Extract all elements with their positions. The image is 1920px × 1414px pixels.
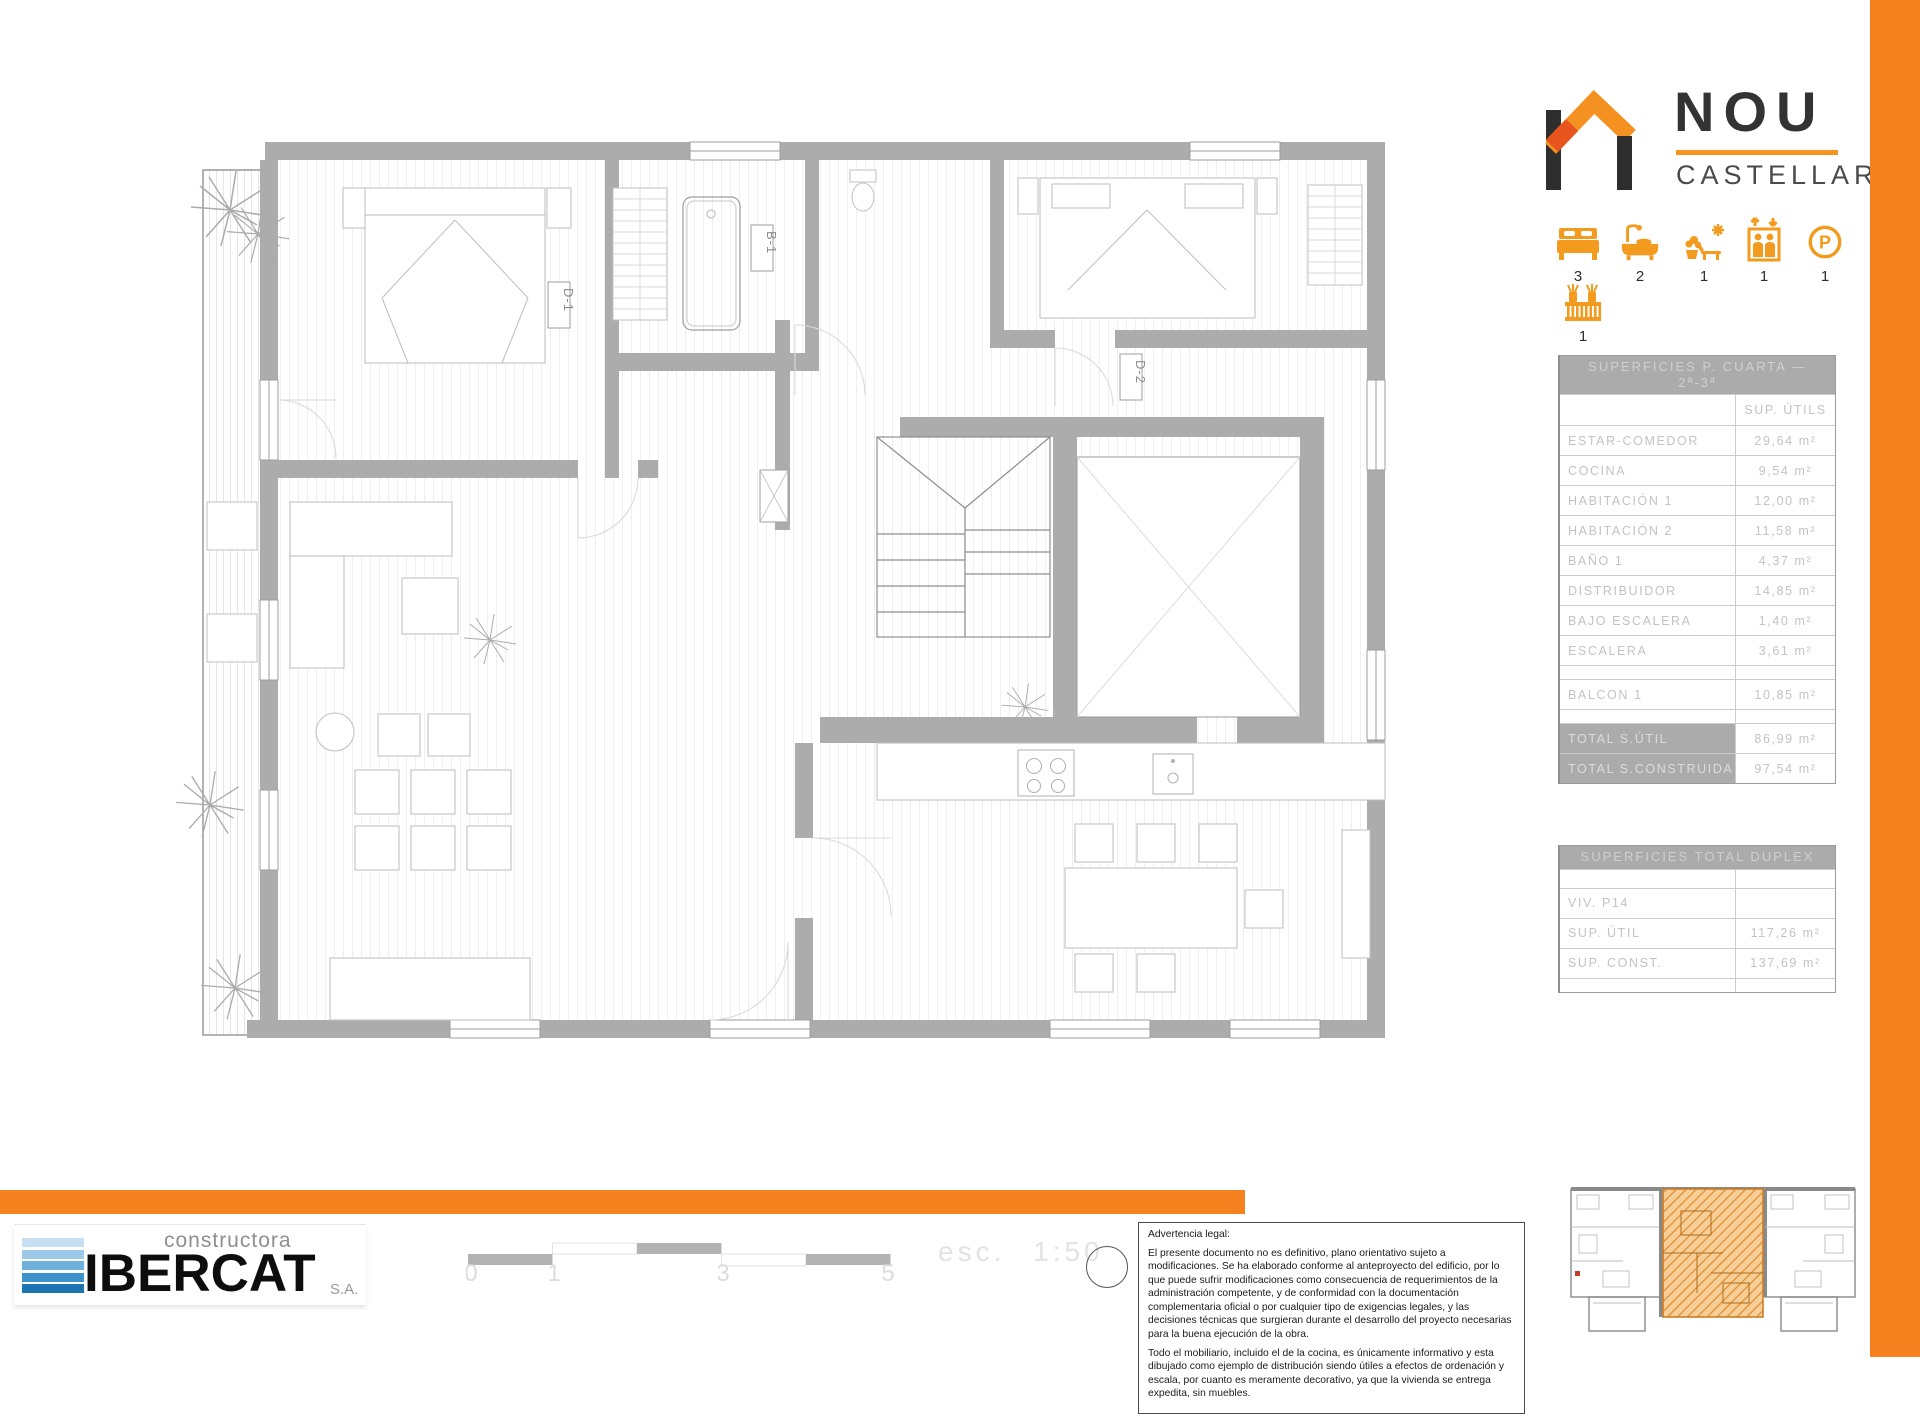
kitchen [877,743,1385,800]
table-row: BALCON 110,85 m² [1560,679,1835,709]
ibercat-bars-icon [22,1238,84,1296]
svg-text:1: 1 [547,1260,560,1284]
bottom-orange-bar [0,1190,1245,1214]
surfaces-table-title: SUPERFICIES P. CUARTA — 2ª-3ª [1560,356,1835,394]
brand-title: NOU [1674,84,1825,140]
table-row: COCINA9,54 m² [1560,455,1835,485]
closet-d1 [613,188,667,320]
table-total-row: TOTAL S.CONSTRUIDA97,54 m² [1560,753,1835,783]
amenity-bathrooms: 2 [1618,222,1662,285]
scale-text: esc. 1:50 [938,1236,1104,1268]
ibercat-suffix: S.A. [330,1281,358,1298]
table-row: HABITACIÓN 211,58 m² [1560,515,1835,545]
svg-text:D-2: D-2 [1133,360,1148,384]
table-row: BAJO ESCALERA1,40 m² [1560,605,1835,635]
table-spacer-row [1560,709,1835,723]
svg-text:0: 0 [466,1260,478,1284]
surfaces-table: SUPERFICIES P. CUARTA — 2ª-3ª SUP. ÚTILS… [1558,355,1836,784]
table-spacer-row [1560,978,1835,992]
bed-d1 [343,188,571,363]
amenity-balcony: 1 [1560,280,1606,345]
table-row: HABITACIÓN 112,00 m² [1560,485,1835,515]
table-row: SUP. CONST.137,69 m² [1560,948,1835,978]
table-total-row: TOTAL S.ÚTIL86,99 m² [1560,723,1835,753]
balcony-terrace [203,170,261,1035]
bathtub-icon [1619,222,1661,262]
patio-void [1077,457,1300,717]
parking-icon: P [1806,222,1844,262]
table-row: ESCALERA3,61 m² [1560,635,1835,665]
right-orange-bar [1870,0,1920,1357]
duplex-table-title: SUPERFICIES TOTAL DUPLEX [1560,846,1835,869]
floor-plan: D-1 B-1 D-2 [150,130,1420,1060]
amenity-parking: P 1 [1805,222,1845,285]
table-spacer-row [1560,665,1835,679]
legal-notice: Advertencia legal: El presente documento… [1138,1222,1525,1414]
surfaces-table-colheader: SUP. ÚTILS [1560,394,1835,425]
key-plan-marker [1575,1271,1580,1276]
toilet [850,170,876,211]
table-row: ESTAR-COMEDOR29,64 m² [1560,425,1835,455]
elevator-count: 1 [1744,268,1784,285]
terrace-icon [1680,222,1728,262]
bed-icon [1555,222,1601,262]
constructor-logo: constructora IBERCAT S.A. [14,1224,366,1305]
bathrooms-count: 2 [1618,268,1662,285]
key-plan-highlighted-unit [1663,1189,1763,1317]
house-logo-icon [1546,90,1636,190]
terrace-count: 1 [1678,268,1730,285]
north-circle [1086,1246,1128,1288]
table-row: VIV. P14 [1560,888,1835,918]
parking-count: 1 [1805,268,1845,285]
amenity-terrace: 1 [1678,222,1730,285]
table-row: SUP. ÚTIL117,26 m² [1560,918,1835,948]
balcony-count: 1 [1560,328,1606,345]
duplex-table: SUPERFICIES TOTAL DUPLEX VIV. P14 SUP. Ú… [1558,845,1836,993]
legal-paragraph: Todo el mobiliario, incluido el de la co… [1148,1347,1515,1401]
amenity-bedrooms: 3 [1552,222,1604,285]
svg-text:D-1: D-1 [561,288,576,312]
table-row: DISTRIBUIDOR14,85 m² [1560,575,1835,605]
legal-title: Advertencia legal: [1148,1228,1515,1242]
svg-text:P: P [1819,233,1831,253]
brand-underline [1676,150,1838,155]
key-plan [1563,1183,1863,1345]
brand-subtitle: CASTELLAR [1676,160,1879,191]
legal-paragraph: El presente documento no es definitivo, … [1148,1247,1515,1342]
table-spacer-row [1560,869,1835,888]
svg-text:5: 5 [881,1260,894,1284]
balcony-railing-icon [1561,280,1605,322]
scale-bar: 0 1 3 5 [466,1228,896,1284]
table-row: BAÑO 14,37 m² [1560,545,1835,575]
ibercat-name: IBERCAT [84,1243,316,1304]
svg-text:B-1: B-1 [764,231,779,254]
svg-text:3: 3 [716,1260,729,1284]
amenity-elevator: 1 [1744,216,1784,285]
under-stair-closet [760,470,788,522]
elevator-icon [1746,216,1782,262]
bed-d2 [1018,178,1277,318]
closet-d2 [1308,185,1362,285]
